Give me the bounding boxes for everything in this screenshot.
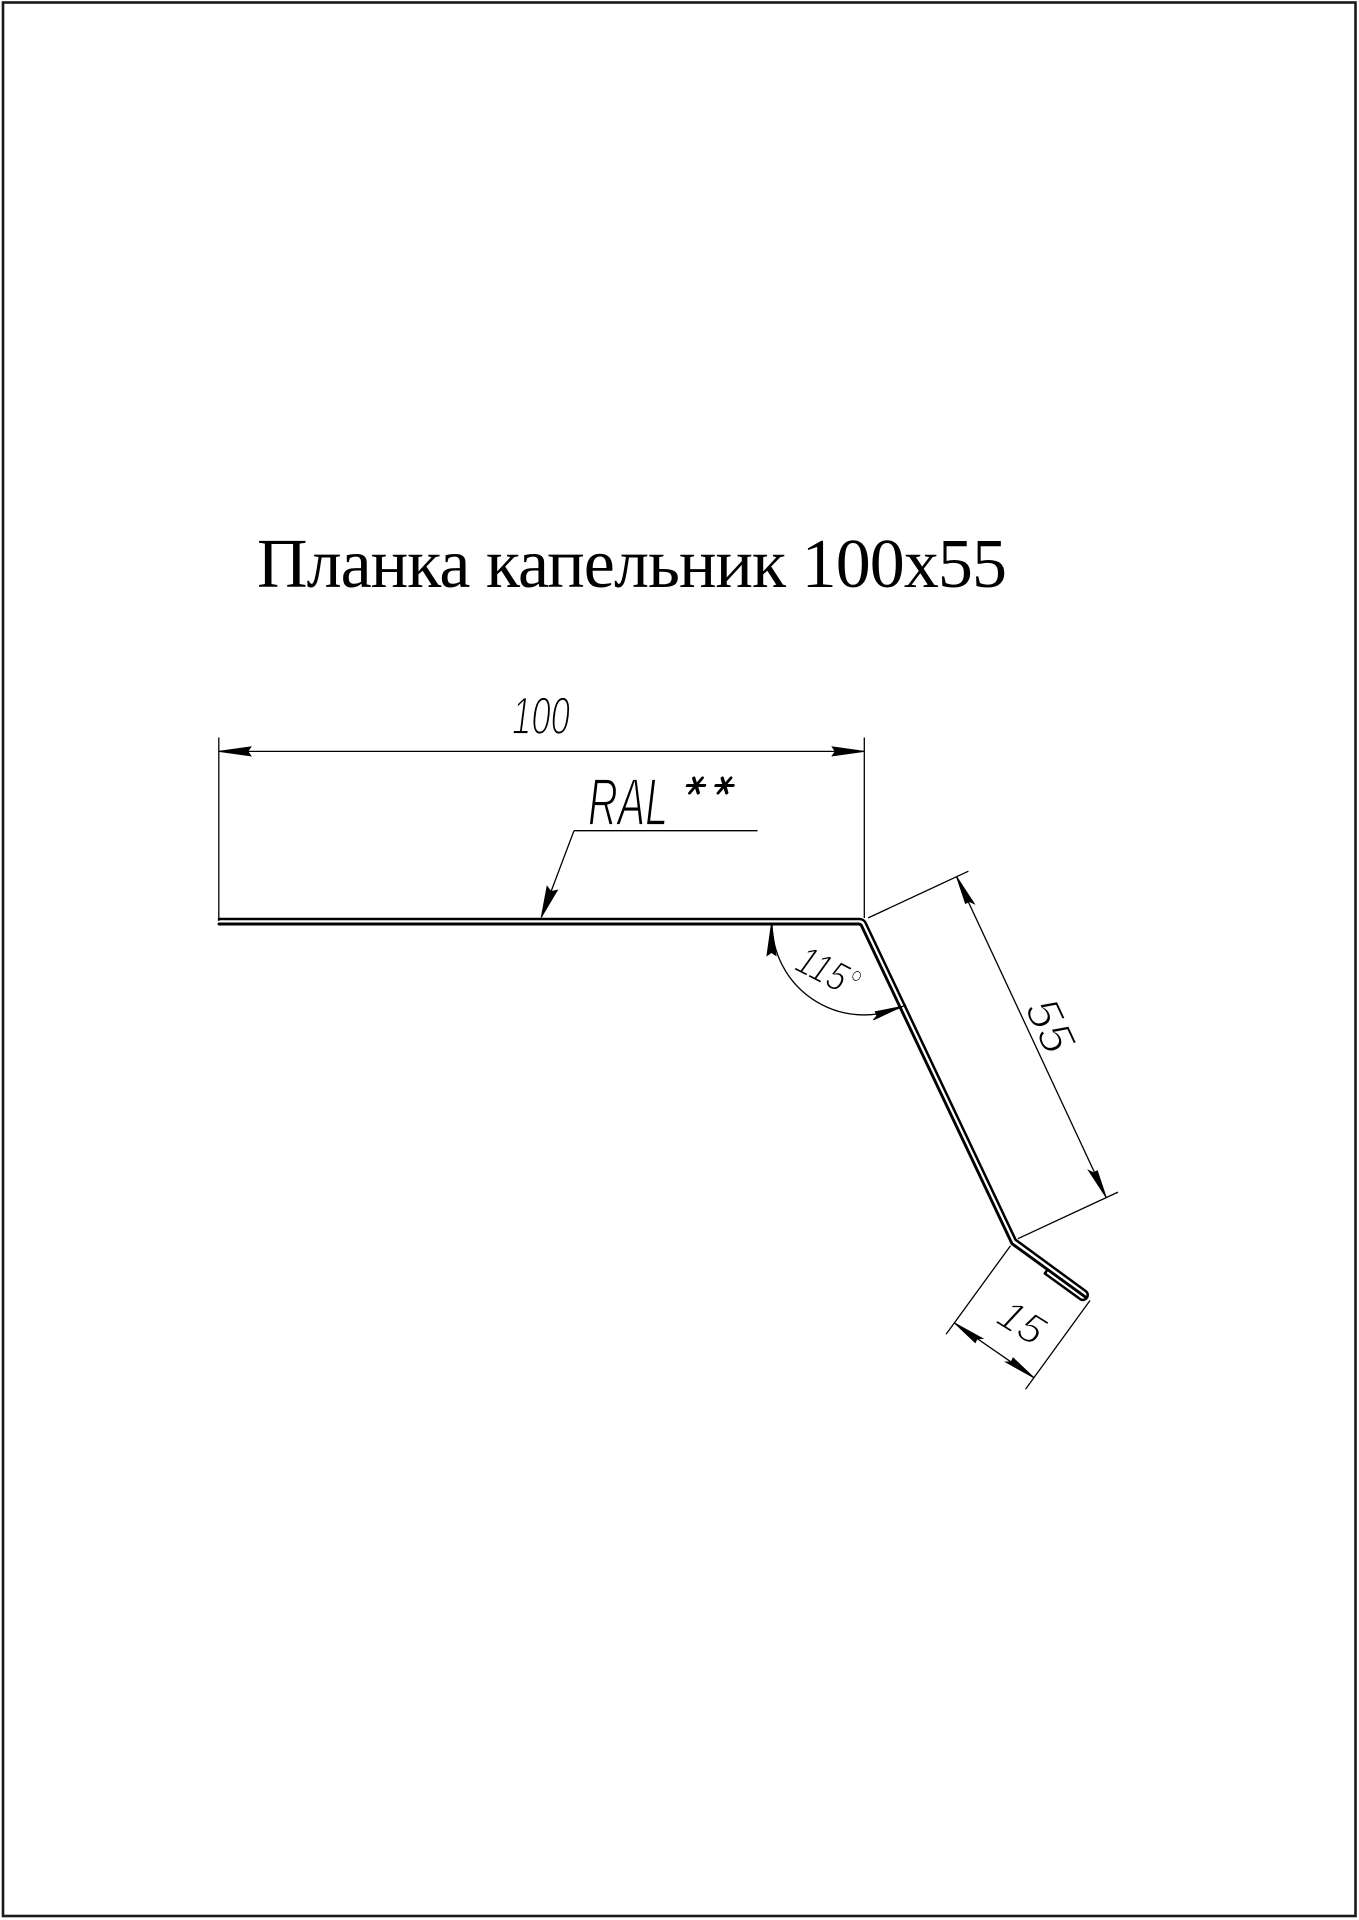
svg-text:Планка капельник 100x55: Планка капельник 100x55 <box>257 526 1007 603</box>
svg-text:100: 100 <box>512 687 570 746</box>
svg-text:RAL: RAL <box>588 765 668 840</box>
